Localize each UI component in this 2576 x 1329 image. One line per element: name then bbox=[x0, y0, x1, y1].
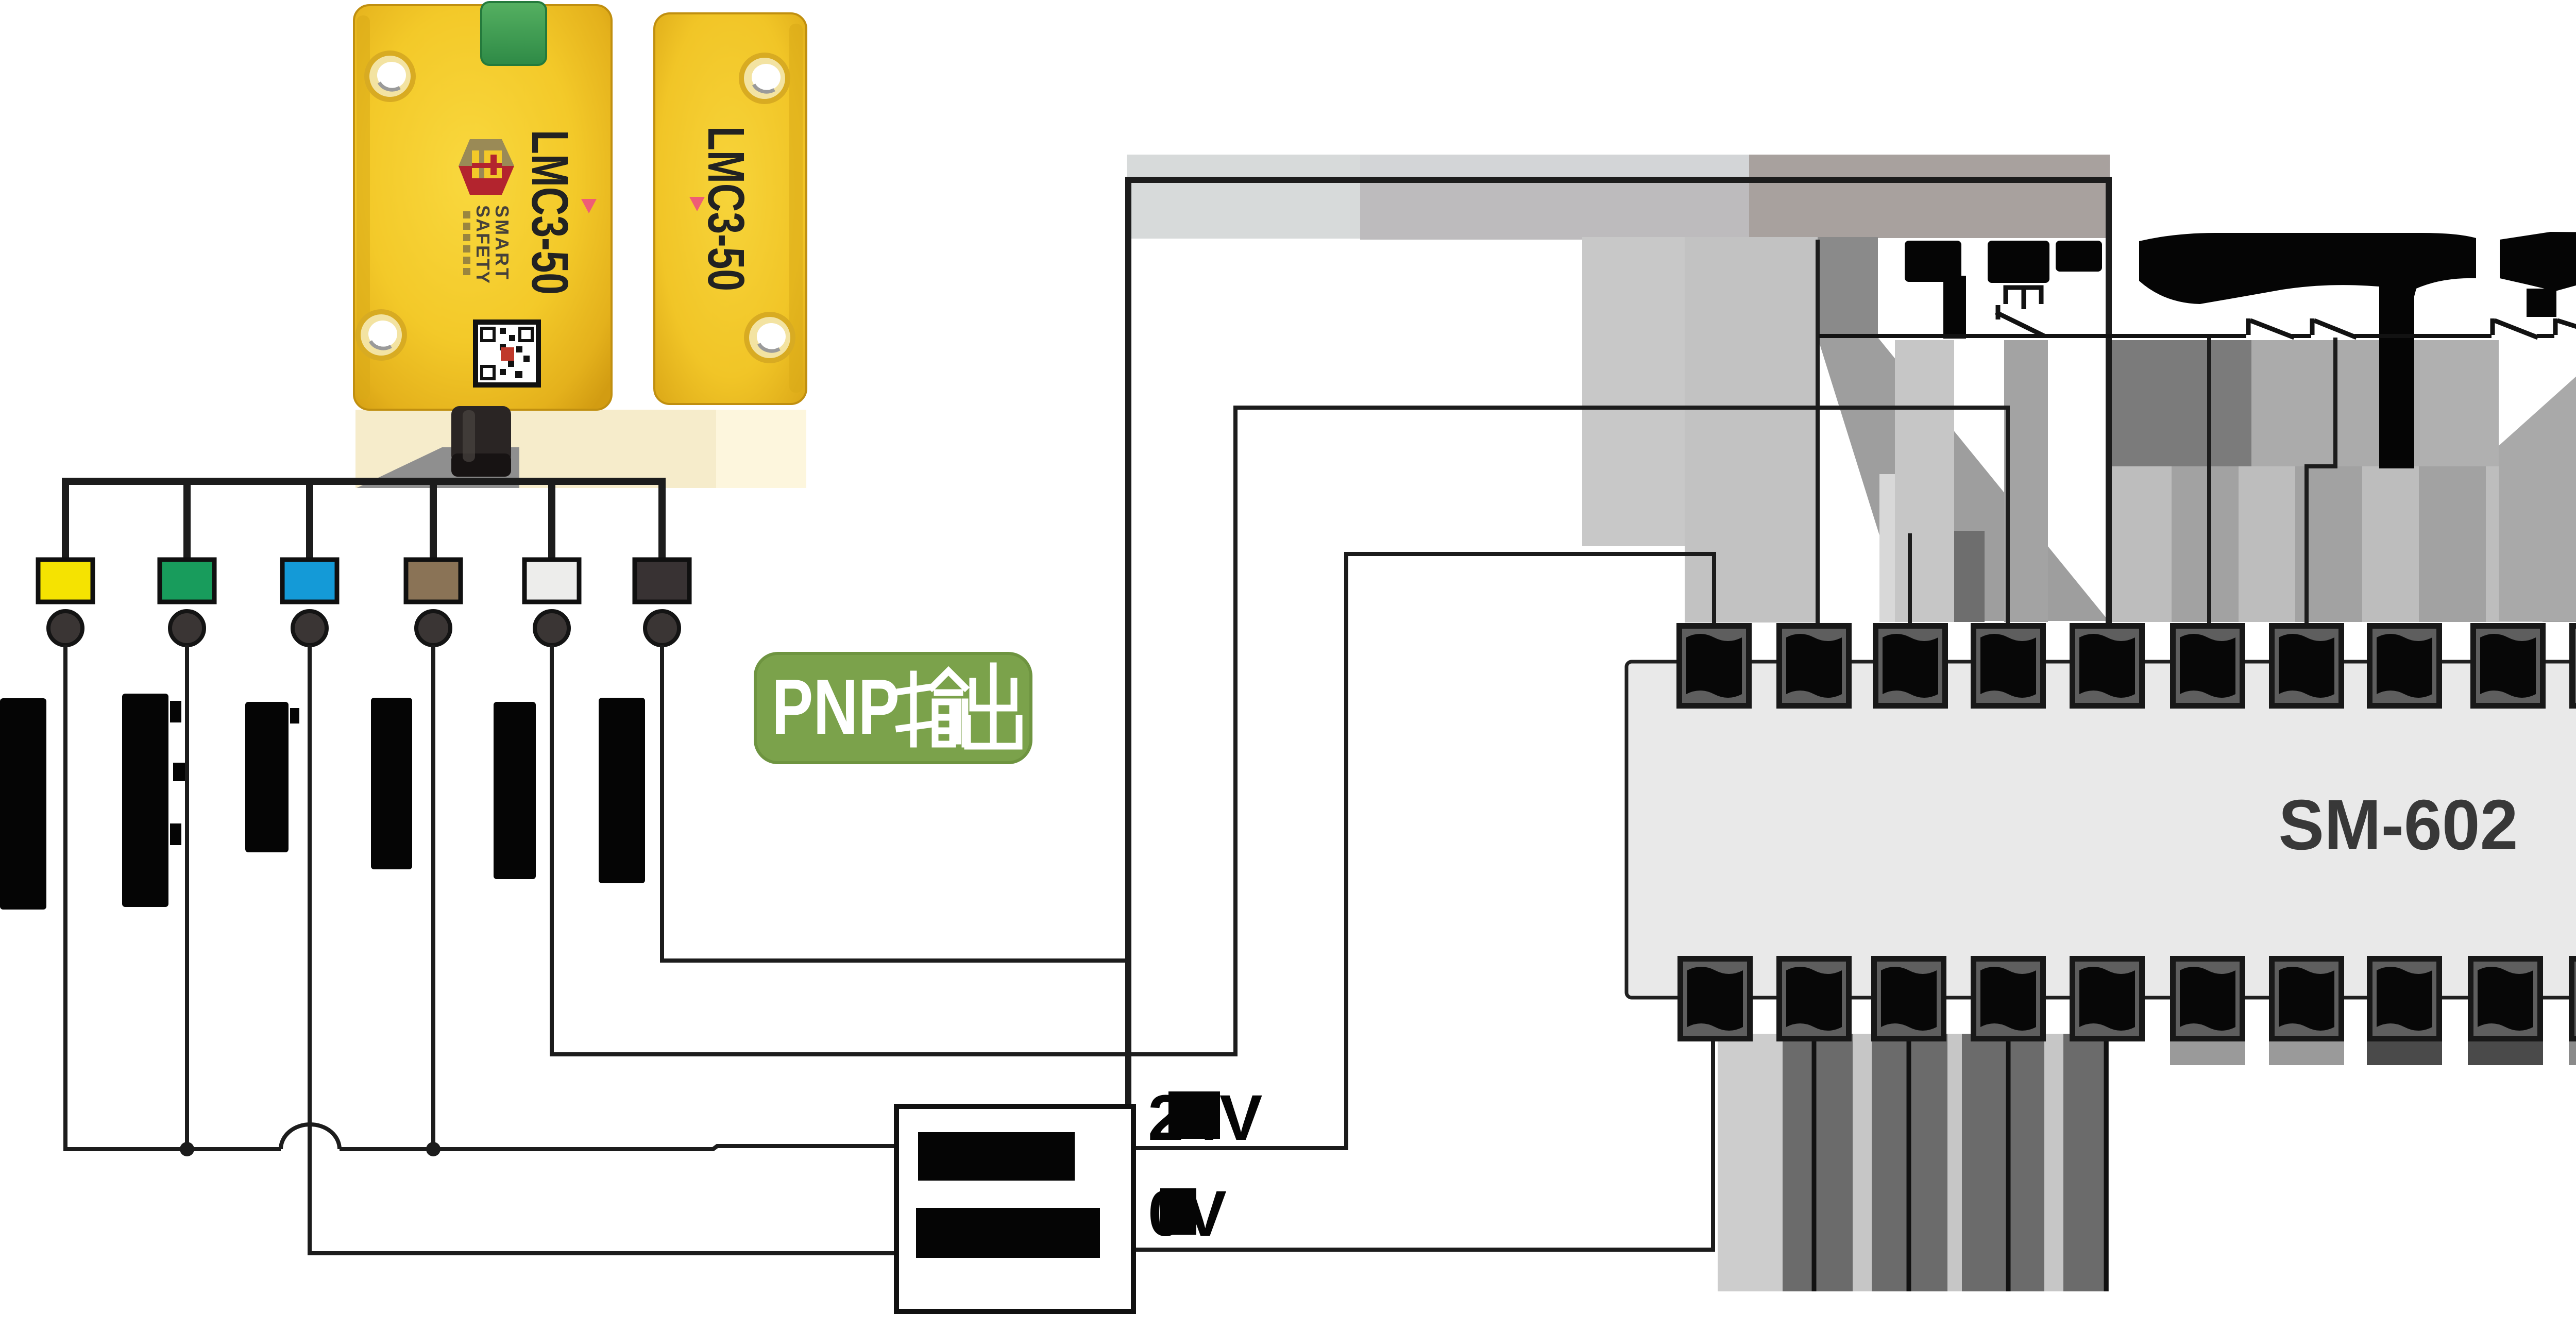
svg-text:LMC3-50: LMC3-50 bbox=[697, 126, 755, 291]
svg-text:SM-602: SM-602 bbox=[2279, 785, 2518, 865]
svg-text:PNP: PNP bbox=[772, 663, 900, 751]
svg-text:SMART: SMART bbox=[492, 205, 513, 281]
svg-text:LMC3-50: LMC3-50 bbox=[521, 130, 579, 295]
svg-text:SAFETY: SAFETY bbox=[472, 205, 494, 284]
